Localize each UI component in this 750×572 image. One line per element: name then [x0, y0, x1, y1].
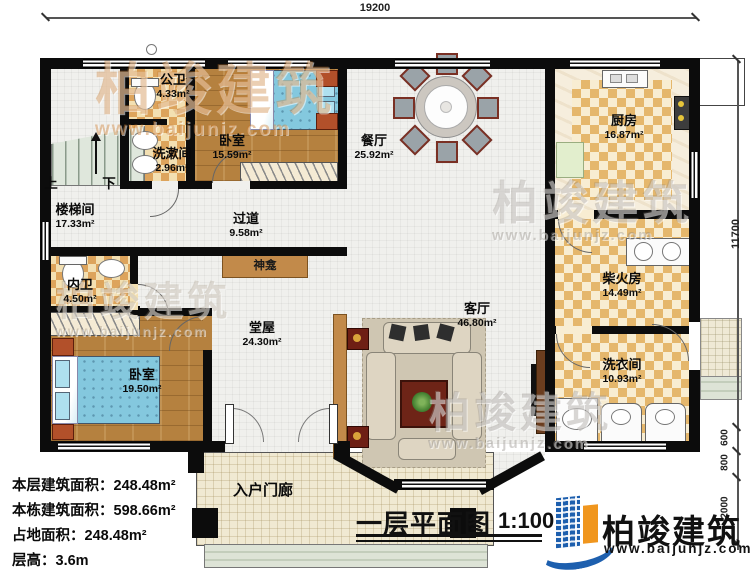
room-name: 堂屋 [212, 321, 312, 336]
window [395, 59, 490, 68]
wall-bedroom1-right [338, 58, 347, 189]
watermark: 柏竣建筑 www.baijunjz.com [428, 392, 612, 451]
stat-line: 层高：3.6m [12, 549, 176, 572]
bed-2-pillow [55, 392, 70, 420]
room-name: 柴火房 [572, 272, 672, 287]
room-label-hallway: 过道 9.58m² [206, 212, 286, 239]
shrine-shelf: 神龛 [222, 255, 308, 278]
room-label-laundry: 洗衣间 10.93m² [572, 358, 672, 385]
porch-junction-left [188, 441, 204, 473]
stat-value: 248.48m² [114, 478, 176, 494]
kitchen-sink [602, 70, 648, 88]
room-name: 公卫 [138, 73, 208, 88]
side-steps [700, 376, 742, 400]
watermark-text: 柏竣建筑 [428, 389, 612, 436]
window [58, 442, 150, 451]
porch-pillar [192, 508, 218, 538]
stat-label: 本栋建筑面积： [12, 503, 114, 519]
kitchen-counter-board [556, 142, 584, 178]
right-dim-800: 800 [720, 443, 731, 483]
watermark-text: 柏竣建筑 [492, 177, 692, 229]
stove-pot-hole [662, 242, 681, 261]
stair-up-label: 上 [38, 176, 64, 192]
room-label-firewood: 柴火房 14.49m² [572, 272, 672, 299]
wall-exterior-right [689, 58, 700, 452]
side-landing [700, 318, 742, 378]
wall-corridor-hall [40, 247, 347, 256]
window [570, 59, 660, 68]
dining-chair [477, 97, 499, 119]
nightstand [52, 424, 74, 440]
room-area: 17.33m² [20, 218, 130, 230]
room-area: 19.50m² [102, 383, 182, 395]
room-label-public-bathroom: 公卫 4.33m² [138, 73, 208, 100]
end-table-ornament [353, 334, 361, 342]
room-name: 入户门廊 [193, 482, 333, 499]
room-area: 14.49m² [572, 287, 672, 299]
stove-burner [678, 101, 684, 107]
room-area: 4.50m² [40, 293, 120, 305]
stat-line: 本层建筑面积：248.48m² [12, 474, 176, 499]
floor-plan-canvas: 19200 11700 600 800 2000 [0, 0, 750, 572]
room-area: 2.96m² [132, 162, 212, 174]
room-name: 过道 [206, 212, 286, 227]
porch-steps [204, 544, 488, 568]
room-name: 餐厅 [334, 134, 414, 149]
stat-line: 本栋建筑面积：598.66m² [12, 499, 176, 524]
washing-machine-door [655, 409, 675, 425]
stat-line: 占地面积：248.48m² [12, 524, 176, 549]
logo-building-blue [556, 496, 580, 549]
room-area: 10.93m² [572, 373, 672, 385]
building-stats: 本层建筑面积：248.48m² 本栋建筑面积：598.66m² 占地面积：248… [12, 474, 176, 572]
room-label-living: 客厅 46.80m² [427, 302, 527, 329]
dining-table-center [440, 101, 452, 113]
door-opening [556, 326, 592, 334]
stair-down-label: 下 [96, 176, 122, 192]
room-label-entry-porch: 入户门廊 [193, 482, 333, 499]
wash-basin [98, 259, 125, 278]
stat-value: 598.66m² [114, 503, 176, 519]
right-dimension-label: 11700 [730, 204, 742, 264]
room-area: 9.58m² [206, 227, 286, 239]
bay-window [402, 480, 486, 489]
end-table-ornament [353, 432, 361, 440]
kitchen-sink-basin [626, 74, 638, 83]
entry-door-leaf [225, 404, 234, 444]
washing-machine-door [611, 409, 631, 425]
room-label-kitchen: 厨房 16.87m² [584, 114, 664, 141]
stove-burner [678, 115, 684, 121]
toilet-tank [59, 256, 87, 265]
entry-door-leaf [329, 404, 338, 444]
wardrobe-1 [240, 162, 338, 182]
room-label-dining: 餐厅 25.92m² [334, 134, 414, 161]
stat-value: 248.48m² [85, 528, 147, 544]
room-area: 46.80m² [427, 317, 527, 329]
room-name: 厨房 [584, 114, 664, 129]
watermark-site: www.baijunjz.com [55, 324, 231, 338]
room-name: 客厅 [427, 302, 527, 317]
room-label-main-hall: 堂屋 24.30m² [212, 321, 312, 348]
plan-scale: 1:100 [498, 508, 554, 534]
title-underline-2 [356, 540, 542, 542]
room-area: 15.59m² [192, 149, 272, 161]
stat-value: 3.6m [56, 553, 89, 569]
shrine-label: 神龛 [254, 260, 277, 272]
side-door-opening [689, 322, 700, 370]
room-name: 卧室 [102, 368, 182, 383]
watermark-site: www.baijunjz.com [492, 228, 692, 243]
room-area: 25.92m² [334, 149, 414, 161]
room-name: 楼梯间 [20, 203, 130, 218]
bed-2-pillow [55, 360, 70, 388]
stat-label: 本层建筑面积： [12, 478, 114, 494]
title-underline [356, 534, 542, 537]
room-label-bedroom1: 卧室 15.59m² [192, 134, 272, 161]
room-area: 4.33m² [138, 88, 208, 100]
dining-chair [393, 97, 415, 119]
stair-arrow-stem [95, 140, 97, 174]
room-label-stairwell: 楼梯间 17.33m² [20, 203, 130, 230]
sofa-cushion [389, 324, 407, 342]
top-dimension-line [46, 17, 696, 19]
brand-site: www.baijunjz.com [604, 541, 750, 556]
stat-label: 层高： [12, 553, 56, 569]
nightstand [52, 338, 74, 356]
watermark: 柏竣建筑 www.baijunjz.com [492, 180, 692, 243]
room-area: 16.87m² [584, 129, 664, 141]
room-name: 内卫 [40, 278, 120, 293]
stat-label: 占地面积： [12, 528, 85, 544]
room-label-inner-bathroom: 内卫 4.50m² [40, 278, 120, 305]
stove-pot-hole [634, 242, 653, 261]
kitchen-sink-basin [610, 74, 622, 83]
shower-head [146, 44, 157, 55]
room-name: 卧室 [192, 134, 272, 149]
room-label-bedroom2: 卧室 19.50m² [102, 368, 182, 395]
top-dimension-label: 19200 [335, 2, 415, 14]
logo-building-orange [583, 504, 598, 544]
sofa-left [366, 352, 396, 440]
room-name: 洗衣间 [572, 358, 672, 373]
watermark-text: 柏竣建筑 [95, 58, 335, 121]
dining-chair [436, 141, 458, 163]
door-opening [152, 181, 178, 189]
watermark-site: www.baijunjz.com [428, 436, 612, 451]
room-area: 24.30m² [212, 336, 312, 348]
watermark: 柏竣建筑 www.baijunjz.com [95, 62, 335, 139]
